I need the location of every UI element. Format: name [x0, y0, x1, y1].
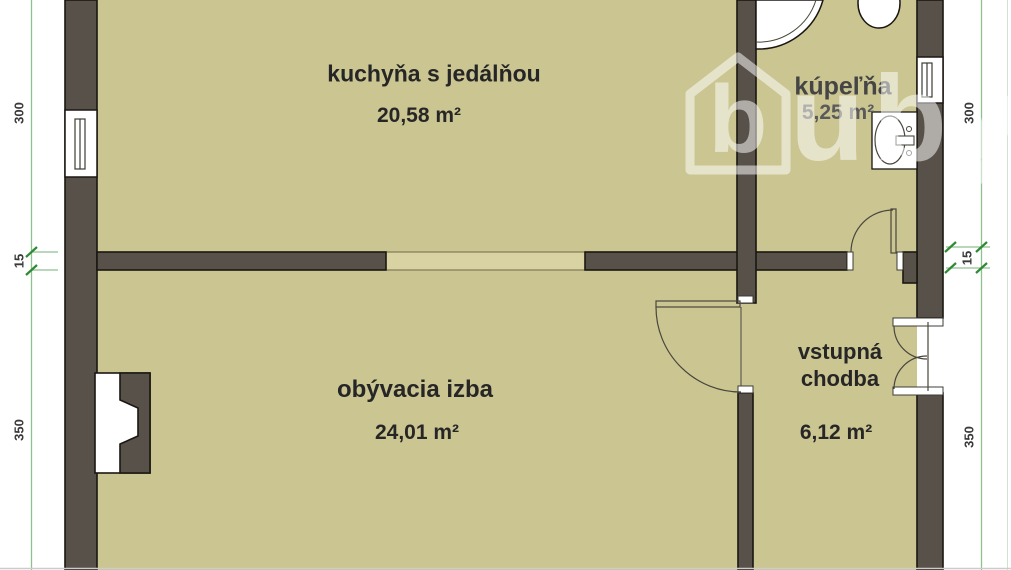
dimension-label-left-350: 350 — [12, 419, 27, 441]
room-area-bathroom: 5,25 m² — [802, 101, 874, 125]
room-area-kitchen: 20,58 m² — [377, 104, 461, 128]
chimney-niche — [95, 373, 150, 473]
dimension-label-right-300: 300 — [962, 102, 977, 124]
room-label-kitchen: kuchyňa s jedálňou — [327, 61, 540, 88]
dimension-line-left — [26, 0, 58, 570]
interior-wall-vertical-top — [737, 0, 756, 303]
room-area-living-room: 24,01 m² — [375, 421, 459, 445]
floor-plan-image: kuchyňa s jedálňou 20,58 m² kúpeľňa 5,25… — [0, 0, 1011, 570]
outer-wall-right-top — [917, 0, 943, 318]
room-label-living-room: obývacia izba — [337, 376, 493, 404]
dimension-label-right-350: 350 — [962, 426, 977, 448]
room-label-bathroom: kúpeľňa — [794, 73, 891, 102]
dimension-line-right — [945, 0, 1008, 570]
interior-wall-horizontal-b — [585, 252, 847, 270]
room-label-hall: vstupná chodba — [776, 338, 904, 392]
window-icon-left — [65, 110, 97, 177]
interior-wall-vertical-bottom — [738, 393, 753, 570]
outer-wall-left — [65, 0, 97, 570]
dimension-label-left-15: 15 — [12, 254, 27, 268]
dimension-label-right-15: 15 — [960, 251, 975, 265]
sink-icon — [872, 112, 917, 169]
window-icon-right — [917, 57, 943, 103]
outer-wall-right-bottom — [917, 393, 943, 570]
wall-passthrough-opening — [386, 252, 585, 270]
interior-wall-horizontal-c — [903, 252, 917, 283]
dimension-label-left-300: 300 — [12, 102, 27, 124]
room-area-hall: 6,12 m² — [800, 421, 872, 445]
interior-wall-horizontal-a — [97, 252, 386, 270]
